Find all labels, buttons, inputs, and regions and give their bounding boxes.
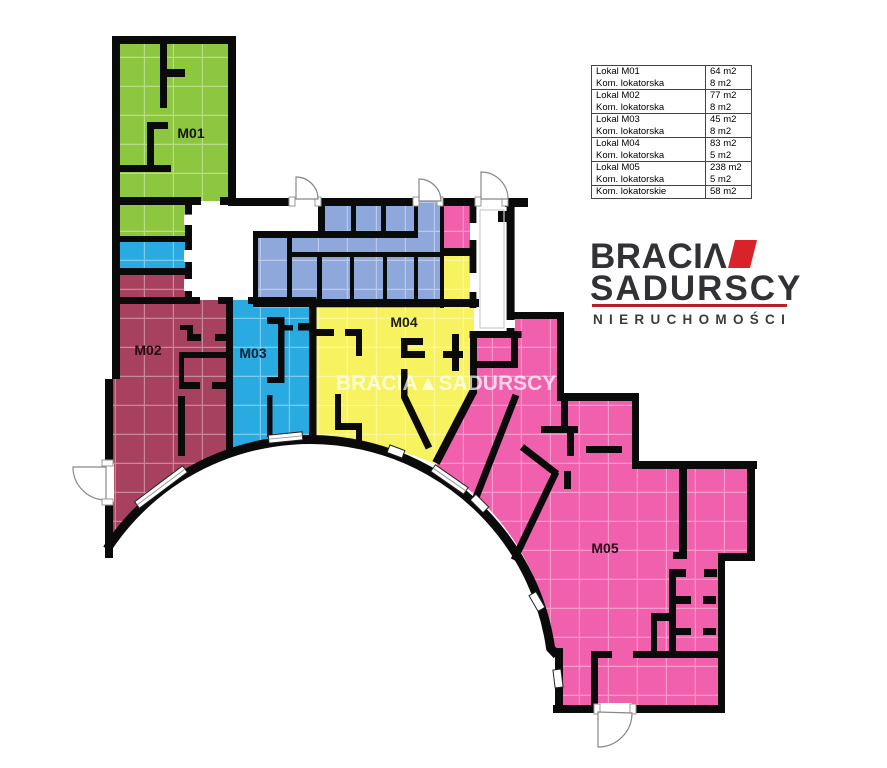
- svg-text:M01: M01: [177, 125, 204, 141]
- svg-text:M03: M03: [239, 345, 266, 361]
- svg-text:M02: M02: [134, 342, 161, 358]
- svg-text:M05: M05: [591, 540, 618, 556]
- svg-text:M04: M04: [390, 314, 417, 330]
